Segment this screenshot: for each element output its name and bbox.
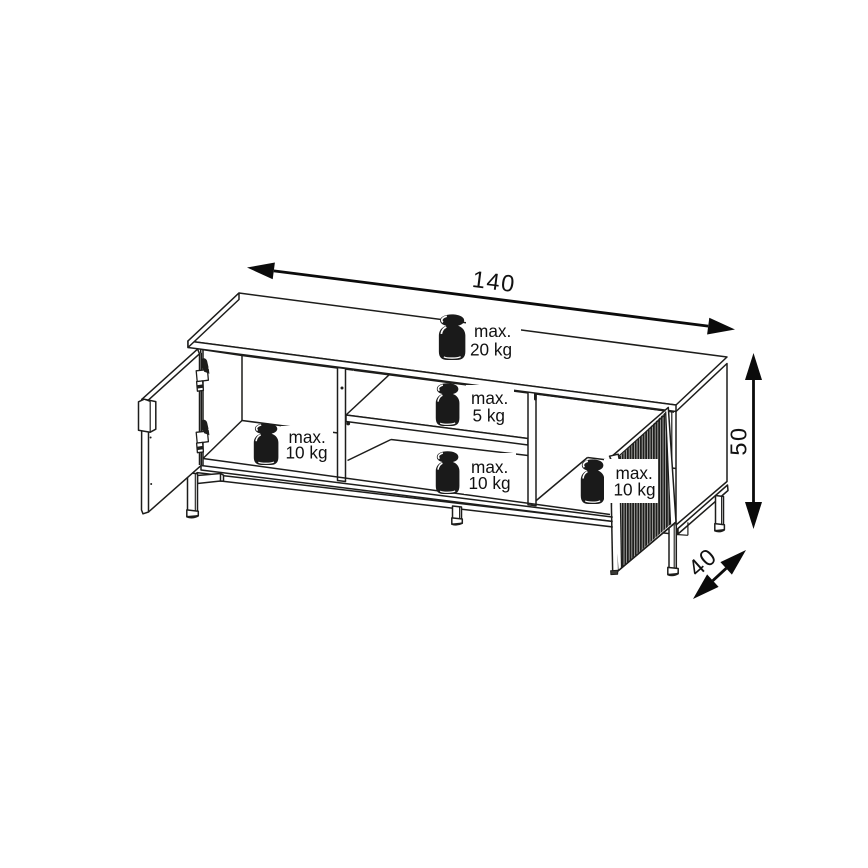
svg-text:140: 140 [471,266,518,297]
svg-text:50: 50 [726,426,752,455]
svg-text:20 kg: 20 kg [470,340,512,360]
svg-text:10 kg: 10 kg [286,443,328,463]
svg-text:5 kg: 5 kg [473,406,506,426]
svg-text:10 kg: 10 kg [469,473,511,493]
svg-text:max.: max. [474,321,511,341]
svg-text:10 kg: 10 kg [614,480,656,500]
